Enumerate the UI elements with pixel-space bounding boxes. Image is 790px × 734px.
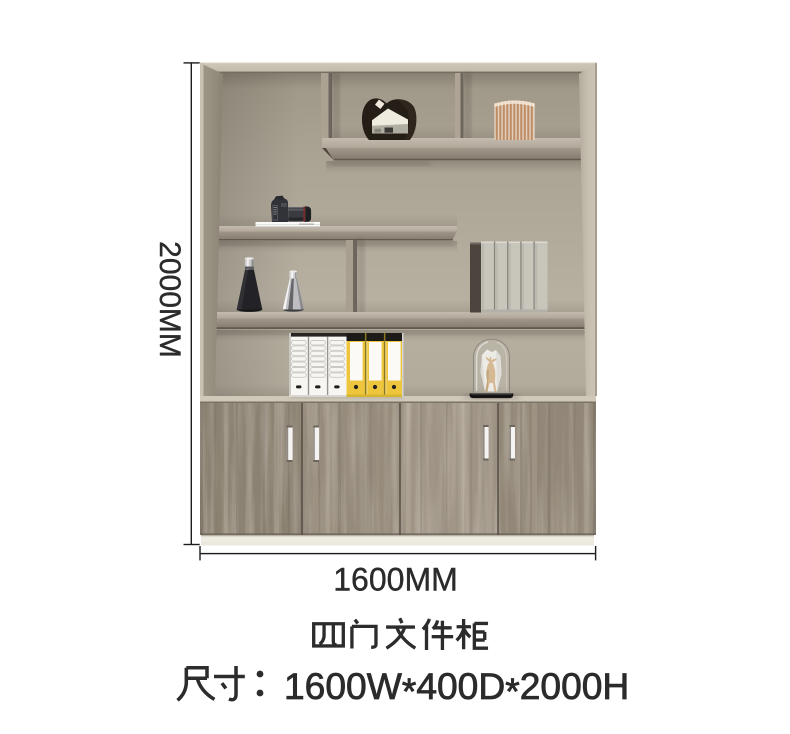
svg-text:1600MM: 1600MM (333, 562, 458, 598)
svg-text:1600W*400D*2000H: 1600W*400D*2000H (284, 665, 629, 712)
svg-text:2000MM: 2000MM (153, 241, 186, 358)
